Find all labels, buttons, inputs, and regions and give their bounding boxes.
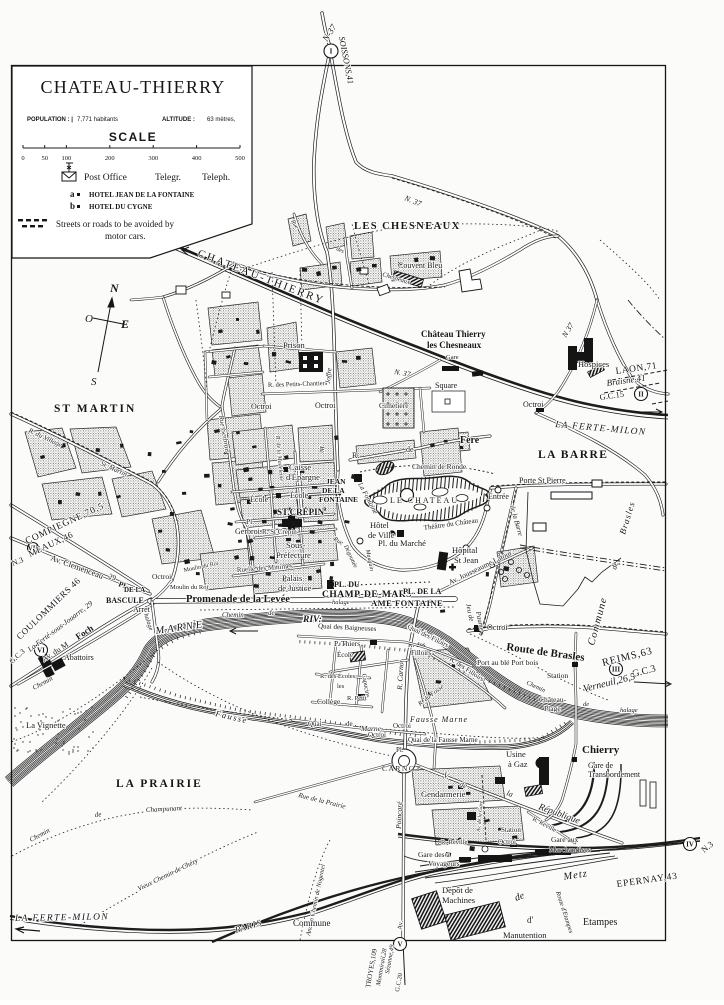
svg-text:LA FERTE-MILON: LA FERTE-MILON xyxy=(14,912,109,924)
svg-text:P. Thiers: P. Thiers xyxy=(334,639,360,648)
svg-text:de: de xyxy=(406,445,414,454)
svg-text:Machines: Machines xyxy=(442,895,475,905)
svg-text:IV: IV xyxy=(686,841,694,849)
svg-text:Port au blé Port bois: Port au blé Port bois xyxy=(477,658,538,667)
svg-text:III: III xyxy=(612,666,620,674)
svg-text:Gerbrois: Gerbrois xyxy=(235,527,263,536)
svg-text:les: les xyxy=(337,683,345,690)
svg-text:HOTEL DU CYGNE: HOTEL DU CYGNE xyxy=(89,203,153,211)
svg-text:Quai: Quai xyxy=(308,720,322,728)
svg-text:CARNOT: CARNOT xyxy=(382,764,422,773)
svg-text:Gare: Gare xyxy=(446,354,459,361)
svg-text:Couvent Bleu: Couvent Bleu xyxy=(398,261,442,270)
svg-text:les Chesneaux: les Chesneaux xyxy=(427,340,482,350)
svg-text:R.: R. xyxy=(352,451,359,460)
svg-text:Préfecture: Préfecture xyxy=(276,550,311,560)
svg-text:de: de xyxy=(346,720,353,728)
svg-text:Av.: Av. xyxy=(396,920,405,930)
svg-text:Marchandises: Marchandises xyxy=(549,845,591,854)
svg-text:500: 500 xyxy=(235,155,245,162)
svg-text:S: S xyxy=(91,376,97,388)
svg-text:Quai de la Fausse Marne: Quai de la Fausse Marne xyxy=(408,736,478,744)
svg-text:Telegr.: Telegr. xyxy=(155,173,181,183)
svg-text:Voyageurs: Voyageurs xyxy=(428,859,460,868)
svg-text:100: 100 xyxy=(62,155,72,162)
svg-text:Abattoirs: Abattoirs xyxy=(64,653,94,662)
svg-text:ALTITUDE :: ALTITUDE : xyxy=(162,117,195,123)
svg-text:Octroi: Octroi xyxy=(315,401,336,410)
svg-text:Octroi: Octroi xyxy=(498,838,516,846)
svg-text:Octroi: Octroi xyxy=(152,572,171,581)
svg-text:R. des Écoles: R. des Écoles xyxy=(320,672,356,680)
svg-text:R. Réville: R. Réville xyxy=(441,839,467,846)
svg-text:d'Épargne: d'Épargne xyxy=(286,472,320,482)
svg-text:POPULATION : |: POPULATION : | xyxy=(27,117,73,123)
svg-text:a: a xyxy=(70,189,75,199)
svg-text:Hôpital: Hôpital xyxy=(452,545,478,555)
svg-text:de Justice: de Justice xyxy=(278,583,312,593)
svg-text:LA PRAIRIE: LA PRAIRIE xyxy=(116,778,203,790)
svg-text:Marne: Marne xyxy=(360,724,382,733)
svg-text:V: V xyxy=(397,941,402,949)
svg-text:Château-: Château- xyxy=(539,695,567,704)
svg-text:Gare de: Gare de xyxy=(588,761,614,770)
svg-text:JEAN: JEAN xyxy=(326,477,346,486)
svg-text:Transbordement: Transbordement xyxy=(588,770,641,779)
svg-text:St Jean: St Jean xyxy=(454,555,479,565)
svg-text:Prison: Prison xyxy=(283,340,305,350)
svg-text:Cimetière: Cimetière xyxy=(379,401,409,410)
svg-text:7,771 habitants: 7,771 habitants xyxy=(77,117,118,123)
svg-text:halage: halage xyxy=(620,707,638,714)
svg-text:Entrée: Entrée xyxy=(488,492,509,501)
svg-text:Chemin de Ronde: Chemin de Ronde xyxy=(412,462,467,471)
svg-text:Dépôt de: Dépôt de xyxy=(442,885,473,895)
svg-text:halage: halage xyxy=(332,599,350,606)
svg-text:O: O xyxy=(85,313,93,325)
svg-text:DE LA: DE LA xyxy=(322,486,345,495)
svg-text:LES CHESNEAUX: LES CHESNEAUX xyxy=(354,221,461,232)
svg-text:DE LA: DE LA xyxy=(124,586,145,594)
svg-text:Filloirs: Filloirs xyxy=(411,649,432,657)
svg-text:CHATEAU-THIERRY: CHATEAU-THIERRY xyxy=(41,77,226,97)
svg-text:LA BARRE: LA BARRE xyxy=(538,449,608,461)
svg-text:M: M xyxy=(319,446,327,454)
svg-text:Streets or roads to be avoided: Streets or roads to be avoided by xyxy=(56,219,174,229)
svg-text:AME FONTAINE: AME FONTAINE xyxy=(371,598,443,608)
svg-text:b: b xyxy=(70,201,75,211)
svg-text:N: N xyxy=(109,281,120,295)
svg-text:de: de xyxy=(268,609,275,617)
svg-text:II: II xyxy=(638,391,644,399)
svg-text:HOTEL JEAN DE LA FONTAINE: HOTEL JEAN DE LA FONTAINE xyxy=(89,191,195,199)
svg-text:Usine: Usine xyxy=(506,749,526,759)
svg-text:200: 200 xyxy=(105,155,115,162)
svg-text:Gare des a: Gare des a xyxy=(418,850,450,859)
svg-text:Octroi: Octroi xyxy=(393,722,411,730)
svg-text:Post Office: Post Office xyxy=(84,172,127,183)
svg-text:0: 0 xyxy=(21,155,24,162)
svg-text:Promenade de la Levée: Promenade de la Levée xyxy=(186,594,290,605)
svg-text:Gare aux: Gare aux xyxy=(551,835,579,844)
svg-text:Square: Square xyxy=(435,381,458,390)
svg-text:400: 400 xyxy=(192,155,202,162)
svg-text:Caisse: Caisse xyxy=(289,462,311,472)
svg-text:Pl.: Pl. xyxy=(396,746,404,754)
svg-text:Manutention: Manutention xyxy=(503,930,547,940)
svg-text:Etampes: Etampes xyxy=(583,917,618,928)
svg-text:École: École xyxy=(250,494,269,504)
svg-text:Hospices: Hospices xyxy=(578,359,609,369)
svg-text:R. St Crépin: R. St Crépin xyxy=(262,528,297,536)
svg-text:Gendarmerie: Gendarmerie xyxy=(421,789,466,799)
svg-text:de: de xyxy=(583,701,589,708)
svg-text:Teleph.: Teleph. xyxy=(202,173,230,183)
svg-text:Commune: Commune xyxy=(293,918,331,928)
svg-text:Octroi: Octroi xyxy=(251,402,272,411)
svg-text:50: 50 xyxy=(41,155,48,162)
svg-text:Palais: Palais xyxy=(282,573,302,583)
svg-text:R. Petit: R. Petit xyxy=(347,695,367,702)
svg-text:Chemin: Chemin xyxy=(222,611,244,619)
svg-text:300: 300 xyxy=(148,155,158,162)
svg-text:E: E xyxy=(120,317,129,331)
svg-text:d': d' xyxy=(527,915,534,925)
svg-text:LE CHATEAU: LE CHATEAU xyxy=(390,496,459,505)
svg-text:Pl. du Marché: Pl. du Marché xyxy=(378,538,426,548)
svg-text:École: École xyxy=(337,651,353,659)
svg-text:FONTAINE: FONTAINE xyxy=(319,495,358,504)
svg-text:Octroi: Octroi xyxy=(523,400,544,409)
svg-text:La Vignette: La Vignette xyxy=(26,720,66,730)
svg-text:BASCULE: BASCULE xyxy=(106,596,144,605)
svg-text:PL. DU: PL. DU xyxy=(334,580,360,589)
svg-text:Station: Station xyxy=(547,671,569,680)
svg-text:motor cars.: motor cars. xyxy=(105,231,146,241)
svg-text:Fausse Marne: Fausse Marne xyxy=(409,715,468,724)
svg-text:Porte St Pierre: Porte St Pierre xyxy=(519,476,566,485)
svg-text:I: I xyxy=(330,48,333,56)
svg-text:École: École xyxy=(290,490,309,500)
svg-text:SCALE: SCALE xyxy=(109,130,157,144)
svg-text:Joffre: Joffre xyxy=(324,367,333,384)
svg-text:ST.CRÉPIN: ST.CRÉPIN xyxy=(277,507,325,517)
svg-text:Pl.: Pl. xyxy=(246,517,254,526)
svg-text:ST MARTIN: ST MARTIN xyxy=(54,403,136,415)
svg-text:Collège: Collège xyxy=(317,697,341,706)
svg-text:Château Thierry: Château Thierry xyxy=(421,329,486,339)
svg-text:Plage: Plage xyxy=(544,704,561,713)
svg-text:Poincaré: Poincaré xyxy=(394,801,404,830)
svg-text:63 mètres,: 63 mètres, xyxy=(207,117,236,123)
svg-text:Moulin du Roi: Moulin du Roi xyxy=(170,584,208,591)
svg-text:Station: Station xyxy=(501,826,521,834)
svg-text:de: de xyxy=(94,810,101,819)
svg-text:Sous-: Sous- xyxy=(286,540,306,550)
svg-text:R. Carnot: R. Carnot xyxy=(395,659,406,691)
svg-text:Fère: Fère xyxy=(460,435,480,446)
svg-text:Chierry: Chierry xyxy=(582,744,620,756)
svg-text:à Gaz: à Gaz xyxy=(508,759,528,769)
svg-text:PL. DE LA: PL. DE LA xyxy=(403,587,442,596)
svg-text:Octroi: Octroi xyxy=(487,623,508,632)
svg-text:Hôtel: Hôtel xyxy=(370,520,390,530)
